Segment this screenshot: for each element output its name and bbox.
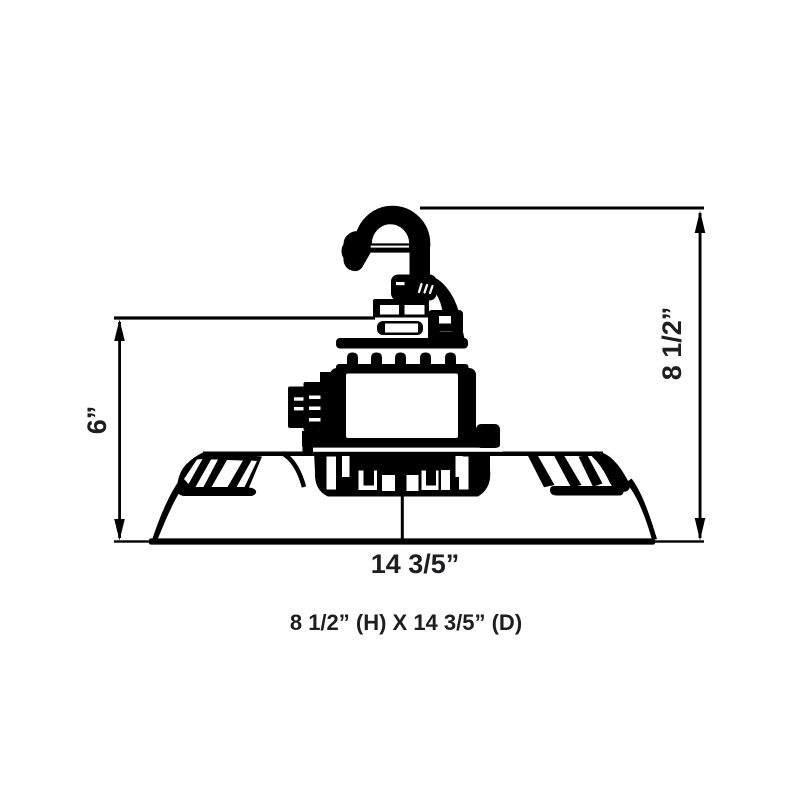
svg-text:8 1/2”: 8 1/2” — [657, 307, 687, 381]
svg-text:6”: 6” — [82, 406, 112, 435]
svg-text:8 1/2” (H) X 14 3/5” (D): 8 1/2” (H) X 14 3/5” (D) — [290, 610, 522, 635]
svg-text:14 3/5”: 14 3/5” — [371, 549, 460, 579]
